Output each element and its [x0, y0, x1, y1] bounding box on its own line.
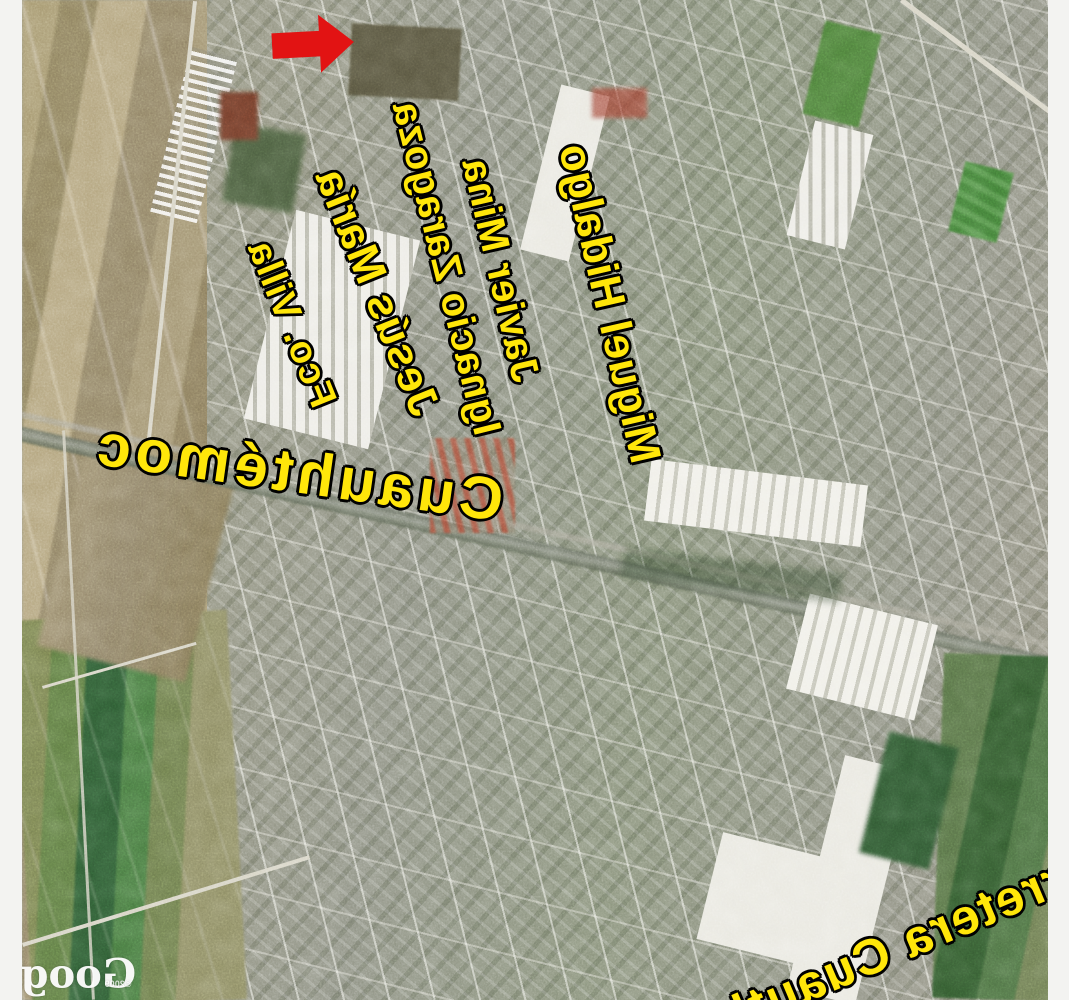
satellite-map[interactable]: Fco. Villa Jesús María Ignacio Zaragoza … [22, 0, 1048, 1000]
left-border [0, 0, 22, 1000]
google-watermark: Google [22, 951, 136, 998]
red-roof-specks [592, 88, 647, 118]
screenshot-frame: Fco. Villa Jesús María Ignacio Zaragoza … [0, 0, 1069, 1000]
copyright-watermark: ©2009 [105, 979, 132, 989]
dark-compound-at-arrow [348, 23, 462, 101]
right-border [1048, 0, 1069, 1000]
red-brown-patch [220, 92, 258, 140]
